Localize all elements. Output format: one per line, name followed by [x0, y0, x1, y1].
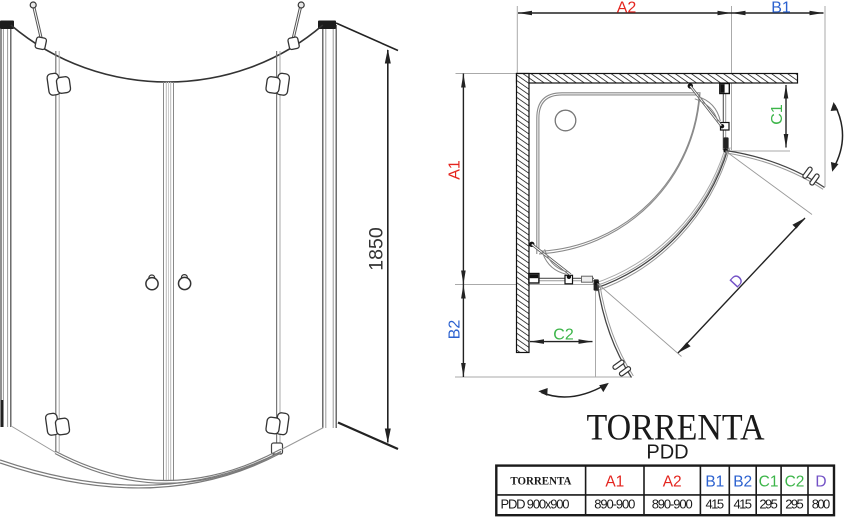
svg-text:C1: C1	[769, 104, 786, 125]
svg-text:800: 800	[812, 497, 831, 512]
svg-text:C1: C1	[759, 474, 779, 491]
svg-text:1850: 1850	[366, 227, 388, 271]
svg-text:A2: A2	[663, 474, 682, 491]
svg-text:TORRENTA: TORRENTA	[510, 474, 571, 488]
svg-text:C2: C2	[785, 474, 805, 491]
svg-text:295: 295	[759, 497, 778, 512]
svg-text:890-900: 890-900	[652, 497, 693, 512]
svg-text:PDD 900x900: PDD 900x900	[501, 497, 570, 512]
svg-text:B2: B2	[446, 320, 463, 340]
svg-text:B1: B1	[705, 474, 724, 491]
svg-text:415: 415	[706, 497, 725, 512]
svg-text:PDD: PDD	[646, 442, 688, 464]
svg-text:B1: B1	[771, 0, 791, 16]
svg-text:415: 415	[733, 497, 752, 512]
svg-text:B2: B2	[733, 474, 752, 491]
svg-text:D: D	[815, 474, 826, 491]
svg-text:A1: A1	[447, 160, 464, 180]
svg-text:C2: C2	[553, 326, 574, 343]
svg-text:A2: A2	[617, 0, 637, 16]
svg-text:295: 295	[785, 497, 804, 512]
svg-text:A1: A1	[605, 474, 624, 491]
svg-text:D: D	[727, 271, 747, 291]
svg-text:890-900: 890-900	[594, 497, 635, 512]
